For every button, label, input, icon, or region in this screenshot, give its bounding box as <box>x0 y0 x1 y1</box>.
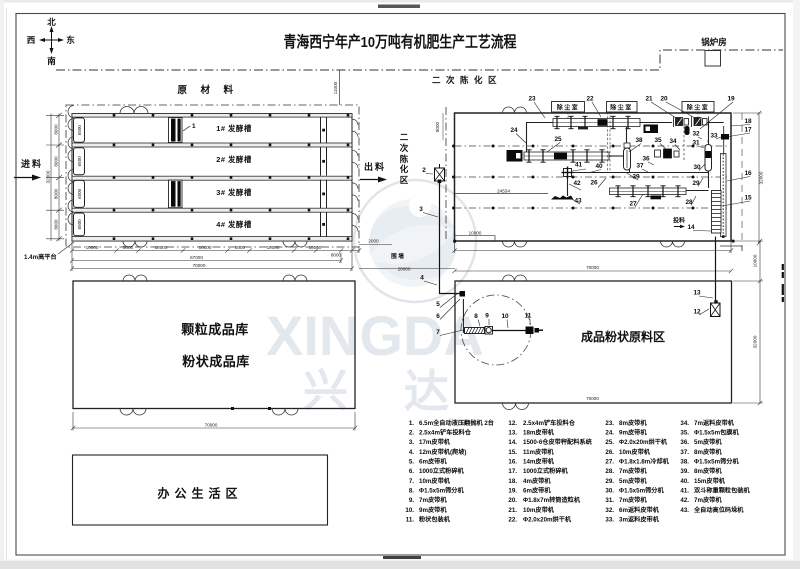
svg-text:5000: 5000 <box>235 245 246 250</box>
svg-text:6m皮带机: 6m皮带机 <box>523 487 551 495</box>
svg-text:6m返料皮带机: 6m返料皮带机 <box>619 506 660 514</box>
svg-text:26080: 26080 <box>398 267 411 272</box>
svg-text:东: 东 <box>66 35 75 45</box>
svg-text:21.: 21. <box>508 507 517 514</box>
svg-text:17m皮带机: 17m皮带机 <box>419 438 451 446</box>
svg-text:1.4m高平台: 1.4m高平台 <box>24 253 57 261</box>
svg-text:37: 37 <box>636 163 644 170</box>
svg-text:28: 28 <box>685 199 693 206</box>
svg-text:XINGDA: XINGDA <box>266 304 484 367</box>
svg-text:11000: 11000 <box>333 81 338 94</box>
svg-text:9m皮带机: 9m皮带机 <box>619 429 647 437</box>
svg-text:10m皮带机: 10m皮带机 <box>619 448 651 456</box>
svg-text:24.: 24. <box>605 430 614 437</box>
svg-text:12.: 12. <box>508 420 517 427</box>
svg-text:北: 北 <box>47 17 56 27</box>
svg-text:6500: 6500 <box>77 188 82 199</box>
svg-text:Φ2.0x20m烘干机: Φ2.0x20m烘干机 <box>619 438 668 446</box>
svg-text:37.: 37. <box>680 449 689 456</box>
svg-text:22.: 22. <box>508 517 517 524</box>
svg-text:40.: 40. <box>680 478 689 485</box>
svg-text:3m返料皮带机: 3m返料皮带机 <box>619 516 660 524</box>
svg-text:41: 41 <box>575 162 583 169</box>
svg-text:29: 29 <box>692 180 700 187</box>
svg-text:7m皮带机: 7m皮带机 <box>619 467 647 475</box>
svg-text:粉状包装机: 粉状包装机 <box>419 516 451 524</box>
svg-text:3.: 3. <box>409 439 414 446</box>
svg-text:6: 6 <box>436 313 440 320</box>
svg-text:化: 化 <box>400 164 409 174</box>
svg-text:10000: 10000 <box>753 254 758 267</box>
svg-text:Φ1.8x7m转筒造粒机: Φ1.8x7m转筒造粒机 <box>523 496 581 504</box>
svg-text:Φ1.5x5m筛分机: Φ1.5x5m筛分机 <box>619 487 664 495</box>
svg-text:8m皮带机: 8m皮带机 <box>694 467 722 475</box>
svg-text:除尘室: 除尘室 <box>687 104 710 112</box>
svg-text:34: 34 <box>669 138 677 145</box>
svg-text:33: 33 <box>710 133 718 140</box>
svg-text:3# 发酵槽: 3# 发酵槽 <box>216 188 252 197</box>
svg-text:42.: 42. <box>680 497 689 504</box>
svg-text:12m皮带机(爬坡): 12m皮带机(爬坡) <box>419 448 466 456</box>
svg-text:17.: 17. <box>508 468 517 475</box>
svg-text:32000: 32000 <box>759 171 764 184</box>
svg-text:6500: 6500 <box>77 219 82 230</box>
svg-text:15m皮带机: 15m皮带机 <box>694 477 726 485</box>
svg-text:30: 30 <box>693 164 701 171</box>
svg-text:5: 5 <box>436 301 440 308</box>
svg-text:10000: 10000 <box>86 245 99 250</box>
svg-text:36: 36 <box>642 156 650 163</box>
svg-text:5m皮带机: 5m皮带机 <box>619 477 647 485</box>
svg-text:5.: 5. <box>409 459 414 466</box>
svg-text:次: 次 <box>400 143 409 153</box>
svg-text:3: 3 <box>419 206 423 213</box>
svg-text:22: 22 <box>586 96 594 103</box>
svg-text:6.: 6. <box>409 468 414 475</box>
svg-text:6m皮带机: 6m皮带机 <box>419 458 447 466</box>
svg-text:23: 23 <box>528 96 536 103</box>
svg-text:10000: 10000 <box>469 230 482 235</box>
svg-text:锅炉房: 锅炉房 <box>700 37 727 47</box>
svg-text:14m皮带机: 14m皮带机 <box>523 458 555 466</box>
svg-text:7m皮带机: 7m皮带机 <box>419 496 447 504</box>
svg-text:10000: 10000 <box>267 245 280 250</box>
svg-text:7m返料皮带机: 7m返料皮带机 <box>694 419 735 427</box>
svg-text:达: 达 <box>404 366 449 417</box>
svg-text:7m皮带机: 7m皮带机 <box>619 496 647 504</box>
svg-text:36.: 36. <box>680 439 689 446</box>
svg-text:24: 24 <box>510 127 518 134</box>
svg-text:12: 12 <box>693 309 701 316</box>
svg-text:42: 42 <box>573 180 581 187</box>
svg-text:30.: 30. <box>605 488 614 495</box>
svg-text:6500: 6500 <box>77 156 82 167</box>
svg-text:8000: 8000 <box>54 219 59 230</box>
svg-text:18: 18 <box>744 118 752 125</box>
svg-text:青海西宁年产10万吨有机肥生产工艺流程: 青海西宁年产10万吨有机肥生产工艺流程 <box>284 33 517 51</box>
svg-text:19: 19 <box>727 96 735 103</box>
svg-text:17: 17 <box>744 127 752 134</box>
svg-text:38.: 38. <box>680 459 689 466</box>
svg-text:18.: 18. <box>508 478 517 485</box>
svg-text:70000: 70000 <box>205 423 218 428</box>
svg-text:出料: 出料 <box>364 161 386 172</box>
svg-text:18m皮带机: 18m皮带机 <box>523 429 555 437</box>
svg-text:43.: 43. <box>680 507 689 514</box>
svg-text:25: 25 <box>554 136 562 143</box>
svg-text:颗粒成品库: 颗粒成品库 <box>181 322 249 337</box>
svg-text:9.: 9. <box>409 497 414 504</box>
svg-text:4# 发酵槽: 4# 发酵槽 <box>216 220 252 229</box>
svg-text:2000: 2000 <box>368 239 379 244</box>
svg-text:32: 32 <box>692 131 700 138</box>
svg-text:4.: 4. <box>409 449 414 456</box>
svg-text:19.: 19. <box>508 488 517 495</box>
svg-text:南: 南 <box>47 56 56 66</box>
svg-text:31.: 31. <box>605 497 614 504</box>
svg-text:35.: 35. <box>680 430 689 437</box>
svg-text:20: 20 <box>660 96 668 103</box>
svg-text:西: 西 <box>27 35 36 45</box>
svg-text:43: 43 <box>574 198 582 205</box>
svg-text:成品粉状原料区: 成品粉状原料区 <box>581 329 665 344</box>
svg-text:8: 8 <box>474 313 478 320</box>
svg-text:8m皮带机: 8m皮带机 <box>694 448 722 456</box>
svg-text:11.: 11. <box>406 517 415 524</box>
svg-text:8000: 8000 <box>54 156 59 167</box>
svg-text:10: 10 <box>501 313 509 320</box>
svg-text:7m皮带机: 7m皮带机 <box>694 496 722 504</box>
svg-text:8000: 8000 <box>54 188 59 199</box>
svg-text:15.: 15. <box>508 449 517 456</box>
svg-text:32.: 32. <box>605 507 614 514</box>
svg-text:粉状成品库: 粉状成品库 <box>182 354 250 369</box>
svg-text:25.: 25. <box>605 439 614 446</box>
svg-text:11m皮带机: 11m皮带机 <box>523 448 554 456</box>
svg-text:39: 39 <box>632 174 640 181</box>
svg-text:二: 二 <box>400 132 409 142</box>
svg-text:29.: 29. <box>605 478 614 485</box>
svg-text:70000: 70000 <box>193 263 206 268</box>
svg-text:进料: 进料 <box>21 158 43 169</box>
svg-text:2# 发酵槽: 2# 发酵槽 <box>216 155 252 164</box>
svg-text:1000立式粉碎机: 1000立式粉碎机 <box>419 467 465 475</box>
svg-text:5m皮带机: 5m皮带机 <box>694 438 722 446</box>
svg-text:4m皮带机: 4m皮带机 <box>523 477 551 485</box>
svg-text:Φ2.0x20m烘干机: Φ2.0x20m烘干机 <box>523 516 572 524</box>
svg-text:27: 27 <box>629 201 637 208</box>
svg-text:28.: 28. <box>605 468 614 475</box>
svg-text:13.: 13. <box>508 430 517 437</box>
svg-text:除尘室: 除尘室 <box>610 104 633 112</box>
svg-text:31: 31 <box>692 140 700 147</box>
svg-text:1# 发酵槽: 1# 发酵槽 <box>216 124 252 133</box>
svg-text:陈: 陈 <box>400 154 409 164</box>
svg-text:Φ1.5x5m筛分机: Φ1.5x5m筛分机 <box>419 487 464 495</box>
svg-text:Φ1.5x5m包膜机: Φ1.5x5m包膜机 <box>694 429 739 437</box>
svg-text:6.5m全自动液压翻抛机 2台: 6.5m全自动液压翻抛机 2台 <box>419 419 494 427</box>
svg-text:全自动高位码垛机: 全自动高位码垛机 <box>693 506 744 514</box>
svg-text:投料: 投料 <box>673 217 685 225</box>
svg-text:33.: 33. <box>605 517 614 524</box>
svg-text:26: 26 <box>590 180 598 187</box>
svg-text:26.: 26. <box>605 449 614 456</box>
svg-text:10000: 10000 <box>155 245 168 250</box>
svg-text:41.: 41. <box>680 488 689 495</box>
svg-text:Φ1.5x5m筛分机: Φ1.5x5m筛分机 <box>694 458 739 466</box>
svg-text:21: 21 <box>645 96 653 103</box>
svg-text:9: 9 <box>485 313 489 320</box>
svg-text:70000: 70000 <box>586 396 599 401</box>
svg-text:10m皮带机: 10m皮带机 <box>523 506 555 514</box>
svg-text:27.: 27. <box>605 459 614 466</box>
svg-text:16: 16 <box>744 170 752 177</box>
svg-text:10000: 10000 <box>199 245 212 250</box>
svg-text:办公生活区: 办公生活区 <box>157 486 242 501</box>
svg-text:7.: 7. <box>409 478 414 485</box>
svg-text:除尘室: 除尘室 <box>557 104 580 112</box>
svg-text:2.: 2. <box>409 430 414 437</box>
svg-text:4: 4 <box>420 275 424 282</box>
svg-text:6500: 6500 <box>77 125 82 136</box>
svg-text:14.: 14. <box>508 439 517 446</box>
svg-text:8000: 8000 <box>435 121 440 132</box>
svg-text:10.: 10. <box>405 507 414 514</box>
svg-text:1.: 1. <box>409 420 414 427</box>
svg-text:23.: 23. <box>605 420 614 427</box>
svg-text:二次陈化区: 二次陈化区 <box>432 75 502 85</box>
svg-text:14: 14 <box>687 224 695 231</box>
svg-text:2.5x4m铲车投料仓: 2.5x4m铲车投料仓 <box>523 419 576 427</box>
svg-text:38: 38 <box>635 137 643 144</box>
svg-text:32000: 32000 <box>753 335 758 348</box>
svg-text:40: 40 <box>595 163 603 170</box>
svg-text:1500-6仓皮带秤配料系统: 1500-6仓皮带秤配料系统 <box>523 438 593 446</box>
svg-text:8000: 8000 <box>331 253 342 258</box>
svg-text:9m皮带机: 9m皮带机 <box>419 506 447 514</box>
svg-text:10m皮带机: 10m皮带机 <box>419 477 451 485</box>
svg-text:15: 15 <box>744 195 752 202</box>
svg-text:24534: 24534 <box>497 188 510 193</box>
svg-text:10000: 10000 <box>309 245 322 250</box>
svg-text:围 墙: 围 墙 <box>391 252 404 260</box>
svg-text:1: 1 <box>192 123 196 130</box>
svg-text:70000: 70000 <box>586 265 599 270</box>
svg-text:8m皮带机: 8m皮带机 <box>619 419 647 427</box>
svg-text:8000: 8000 <box>54 124 59 135</box>
svg-text:7: 7 <box>436 329 440 336</box>
svg-text:1000立式粉碎机: 1000立式粉碎机 <box>523 467 569 475</box>
svg-text:Φ1.8x1.8m冷却机: Φ1.8x1.8m冷却机 <box>619 458 670 466</box>
svg-text:5000: 5000 <box>123 245 134 250</box>
svg-text:35: 35 <box>654 137 662 144</box>
svg-text:13: 13 <box>693 290 701 297</box>
svg-text:双斗称重颗粒包装机: 双斗称重颗粒包装机 <box>693 487 750 495</box>
svg-text:32000: 32000 <box>46 170 51 183</box>
svg-text:39.: 39. <box>680 468 689 475</box>
svg-text:2: 2 <box>422 167 426 174</box>
svg-text:8.: 8. <box>409 488 414 495</box>
svg-text:16.: 16. <box>508 459 517 466</box>
svg-text:2.5x4m铲车投料仓: 2.5x4m铲车投料仓 <box>419 429 472 437</box>
svg-text:67000: 67000 <box>190 255 203 260</box>
svg-text:区: 区 <box>400 175 409 185</box>
svg-text:20.: 20. <box>508 497 517 504</box>
svg-text:原材料: 原材料 <box>177 84 246 96</box>
svg-text:34.: 34. <box>680 420 689 427</box>
